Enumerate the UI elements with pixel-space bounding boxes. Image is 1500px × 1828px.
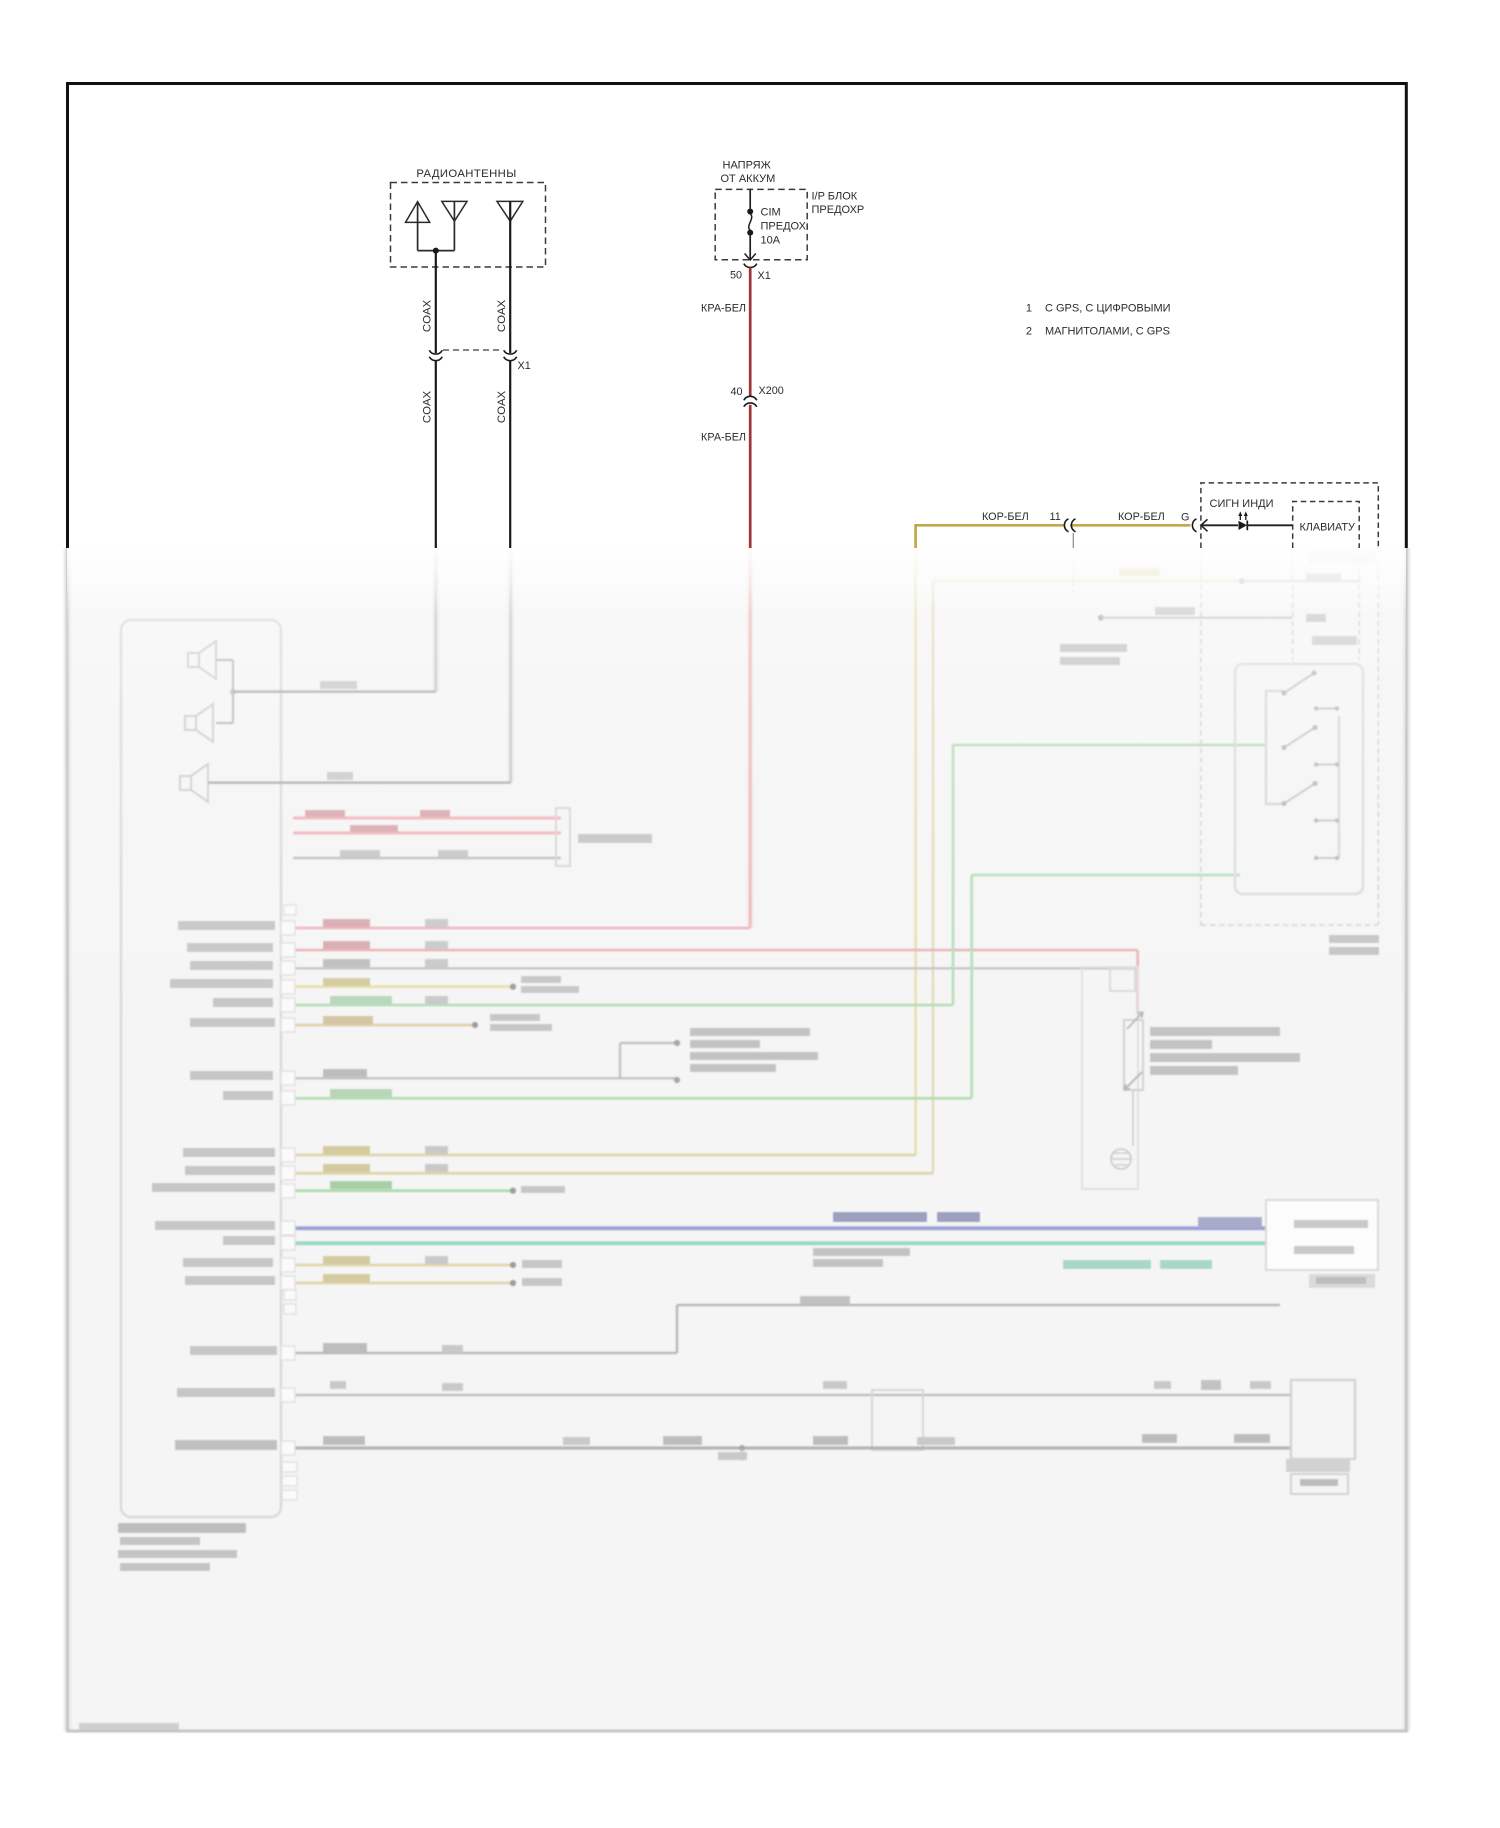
svg-text:CIM: CIM [761,207,781,219]
svg-text:ПРЕДОХ: ПРЕДОХ [761,221,807,233]
svg-text:КЛАВИАТУ: КЛАВИАТУ [1300,522,1355,534]
svg-text:ОТ АККУМ: ОТ АККУМ [721,173,776,185]
svg-text:КОР-БЕЛ: КОР-БЕЛ [1118,511,1165,523]
svg-text:МАГНИТОЛАМИ, С GPS: МАГНИТОЛАМИ, С GPS [1045,326,1170,338]
svg-text:X1: X1 [758,270,771,282]
svg-text:НАПРЯЖ: НАПРЯЖ [723,160,771,172]
svg-text:КРА-БЕЛ: КРА-БЕЛ [701,303,746,315]
svg-text:2: 2 [1026,326,1032,338]
svg-text:G: G [1181,512,1189,524]
svg-text:40: 40 [730,386,742,398]
svg-text:COAX: COAX [496,390,508,423]
svg-text:COAX: COAX [421,299,433,332]
svg-text:10А: 10А [761,235,781,247]
svg-text:COAX: COAX [421,390,433,423]
svg-text:X1: X1 [518,360,531,372]
svg-text:11: 11 [1050,511,1061,523]
svg-text:COAX: COAX [496,299,508,332]
svg-text:КРА-БЕЛ: КРА-БЕЛ [701,432,746,444]
svg-text:I/P БЛОК: I/P БЛОК [812,191,858,203]
svg-text:X200: X200 [759,385,784,397]
svg-text:С GPS, С ЦИФРОВЫМИ: С GPS, С ЦИФРОВЫМИ [1045,303,1171,315]
svg-text:50: 50 [730,270,742,282]
svg-text:КОР-БЕЛ: КОР-БЕЛ [982,511,1029,523]
svg-text:ПРЕДОХР: ПРЕДОХР [812,204,865,216]
svg-text:1: 1 [1026,303,1032,315]
svg-text:СИГН ИНДИ: СИГН ИНДИ [1210,498,1274,510]
svg-text:РАДИОАНТЕННЫ: РАДИОАНТЕННЫ [416,168,516,180]
